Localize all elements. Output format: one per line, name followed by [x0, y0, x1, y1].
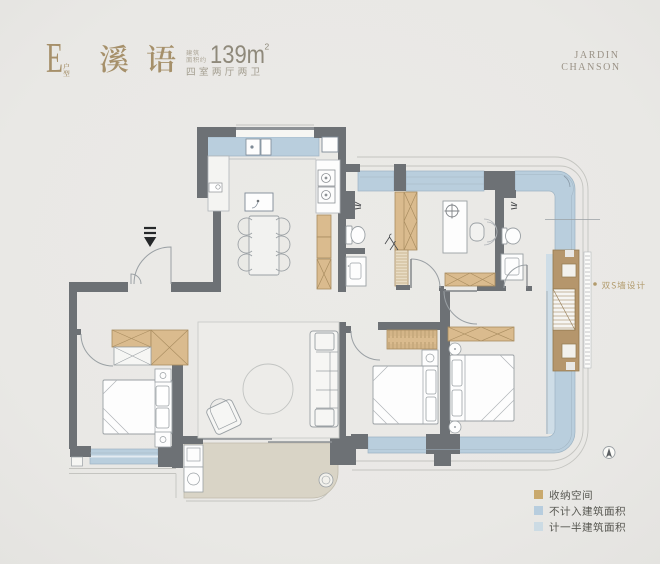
svg-text:CHANSON: CHANSON: [561, 62, 621, 73]
svg-text:JARDIN: JARDIN: [574, 50, 619, 61]
svg-text:2: 2: [265, 42, 270, 52]
svg-text:E: E: [46, 36, 63, 82]
svg-text:139m: 139m: [210, 41, 265, 69]
